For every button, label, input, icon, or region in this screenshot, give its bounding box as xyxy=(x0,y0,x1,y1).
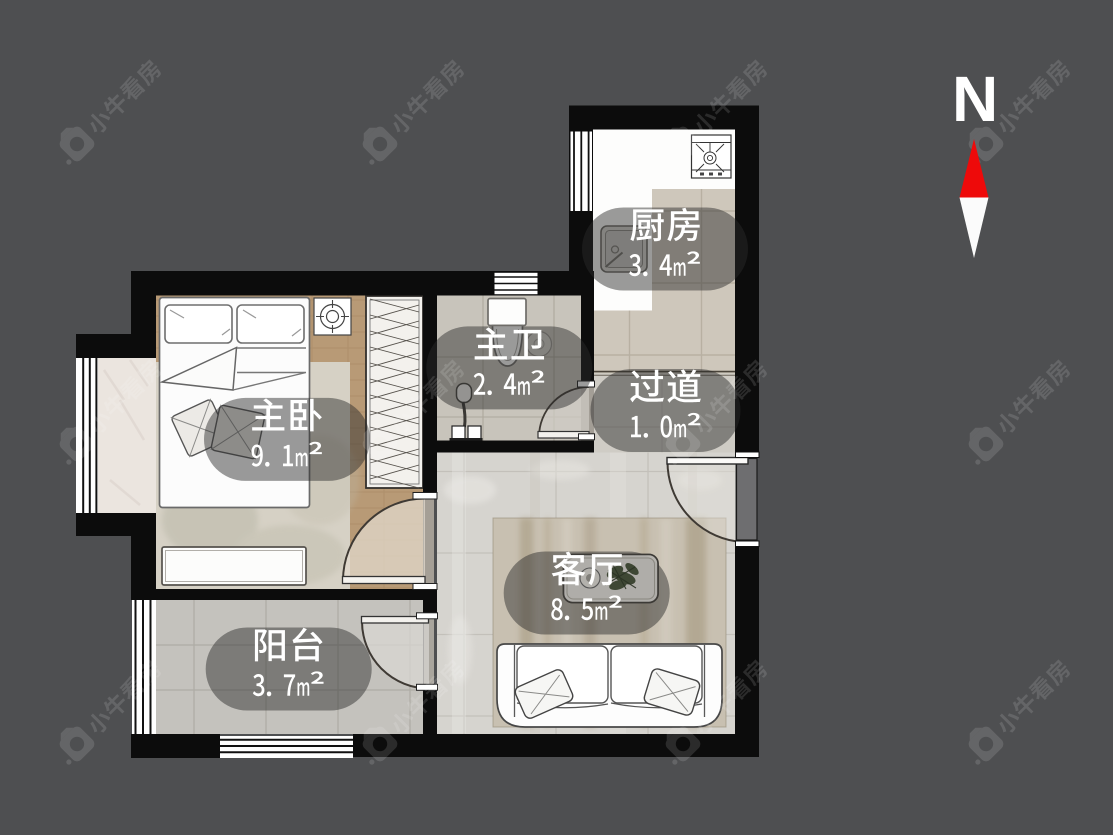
svg-text:N: N xyxy=(952,63,998,135)
